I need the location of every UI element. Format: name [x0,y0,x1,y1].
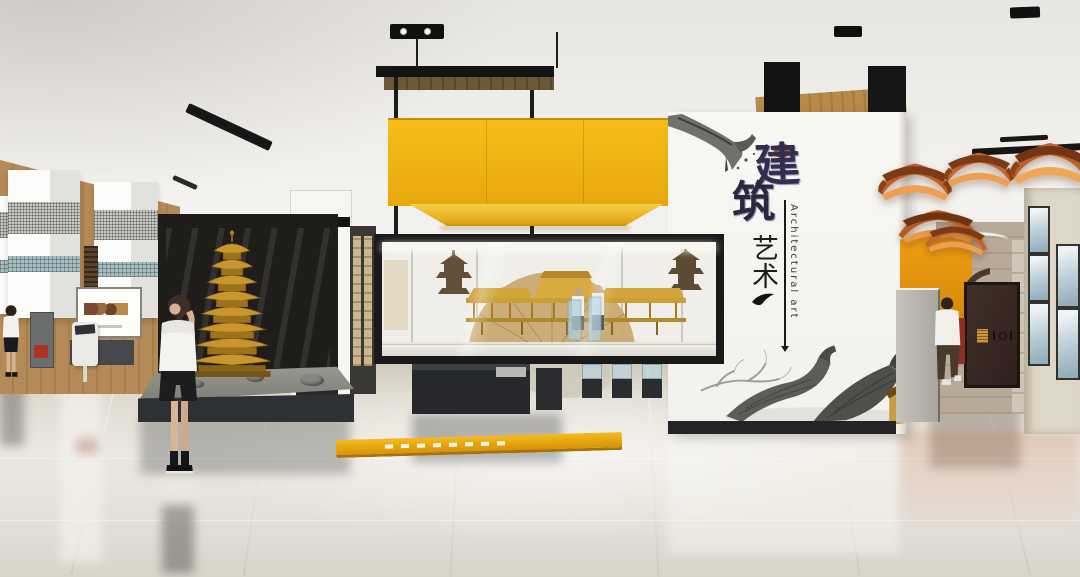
column-pattern-band-blue [94,262,158,277]
column-pattern-band-blue [8,256,80,272]
platform-rock [300,374,324,386]
panel-base-bar [668,421,896,434]
recessed-spotlight-corner [1010,6,1040,18]
vitrine-glass [642,364,662,379]
pedestal-vitrine [642,364,662,398]
reflection-title-panel [668,433,900,553]
soffit-black-box-2 [868,66,906,118]
vitrine-base [612,379,632,398]
info-kiosk [72,322,98,366]
canopy-shadow [440,226,630,230]
kiosk-screen [75,324,96,335]
hanging-beam [376,66,554,77]
calligraphy-subtitle-char-1: 艺 [752,236,779,263]
lightbox-panel [1028,206,1050,254]
case-glass-reflection [382,242,716,356]
lightbox-panel [1056,244,1080,308]
column-pattern-band [94,210,158,240]
vitrine-base [582,379,602,398]
kiosk-stand [83,366,87,382]
reflection-woman-legs [162,505,194,573]
calligraphy-subtitle-char-2: 术 [752,264,779,291]
eave-sculpture-2 [942,140,1016,192]
vitrine-base [642,379,662,398]
pedestal-vitrine [612,364,632,398]
ink-roof-art-bottomright [696,322,906,424]
fire-extinguisher-cabinet [30,312,54,368]
lightbox-panel [1028,302,1050,366]
floor-strip-markings [385,441,505,448]
visitor-woman [150,293,206,481]
bench-small [536,368,562,410]
suspension-rod [416,38,418,68]
lightbox-pillar [1024,188,1080,434]
recessed-spotlight-right [834,26,862,37]
exhibit-door [964,282,1020,388]
screen-caption [94,325,122,328]
recessed-spotlight-center [390,24,444,39]
yellow-canopy [388,118,684,206]
soffit-black-box-1 [764,62,800,116]
vitrine-glass [612,364,632,379]
glass-display-case [374,234,724,364]
fire-extinguisher [34,345,48,358]
calligraphy-title-char-2: 筑 [732,182,775,225]
eave-sculpture-3 [1008,128,1080,190]
visitor-man [930,296,968,400]
english-title-vertical: Architectural art [788,204,799,320]
suspension-rod [556,32,558,68]
door-gold-emblem [977,329,988,343]
bench [412,362,530,414]
lattice-pendant [84,246,98,288]
reflection-eaves [900,432,1080,532]
reflection-kiosk [60,382,102,562]
hanging-column-1 [8,170,80,318]
vitrine-glass [582,364,602,379]
brush-mark-icon [750,290,778,308]
exhibition-hall-scene: 建 筑 艺 术 Architectural art [0,0,1080,577]
beam-wood-soffit [384,77,554,90]
lightbox-panel [1056,308,1080,380]
screen-artifact-image [84,303,128,315]
column-pattern-band [8,202,80,234]
reflection-extinguisher [76,438,98,454]
eave-sculpture-5 [923,212,992,260]
visitor-left [0,302,22,380]
pedestal-vitrine [582,364,602,398]
scroll-display [350,226,376,394]
lightbox-panel [1028,254,1050,302]
door-handle [993,331,1012,340]
